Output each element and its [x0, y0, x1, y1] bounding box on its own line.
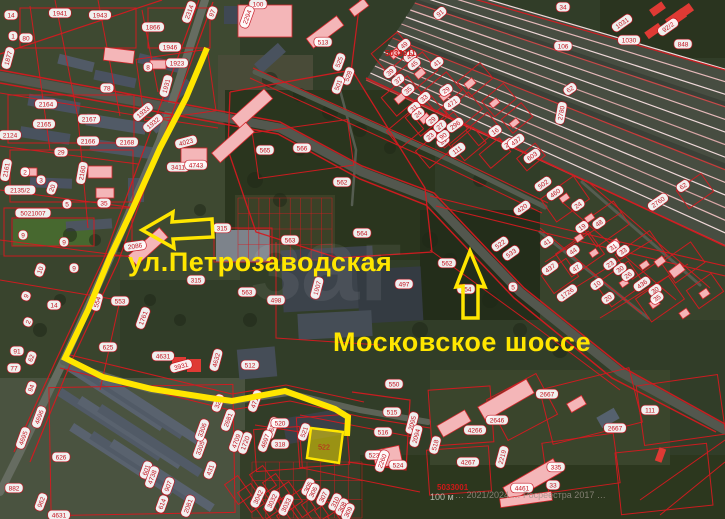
parcel-number-label: 14 [4, 10, 18, 20]
parcel-number-label: 111 [641, 405, 659, 415]
parcel-number-label: 520 [271, 418, 289, 428]
svg-text:626: 626 [56, 454, 67, 461]
svg-text:520: 520 [275, 420, 286, 427]
tree [513, 323, 527, 337]
satellite-map: 1419411943180187718661946192387819311933… [0, 0, 725, 519]
svg-text:563: 563 [285, 237, 296, 244]
parcel-number-label: 29 [54, 147, 68, 157]
svg-text:4266: 4266 [468, 427, 483, 434]
parcel-number-label: 2167 [78, 114, 101, 124]
building [96, 188, 114, 198]
svg-text:2135/2: 2135/2 [10, 187, 30, 194]
svg-text:524: 524 [393, 462, 404, 469]
terrain-patch [216, 230, 270, 262]
svg-text:566: 566 [297, 145, 308, 152]
svg-text:512: 512 [245, 362, 256, 369]
parcel-number-label: 566 [293, 143, 311, 153]
svg-text:2124: 2124 [3, 132, 18, 139]
parcel-number-label: 2168 [116, 137, 139, 147]
svg-text:1946: 1946 [163, 44, 178, 51]
svg-text:2166: 2166 [81, 138, 96, 145]
parcel-number-label: 2667 [604, 423, 627, 433]
cadastral-quarter-label: 5033011 [385, 49, 416, 58]
parcel-number-label: 5 [62, 199, 71, 209]
svg-text:35: 35 [100, 200, 108, 207]
svg-text:3: 3 [39, 177, 43, 184]
svg-text:9: 9 [62, 239, 66, 246]
svg-text:2667: 2667 [608, 425, 623, 432]
svg-text:335: 335 [551, 464, 562, 471]
parcel-number-label: 563 [238, 287, 256, 297]
tree [174, 314, 186, 326]
parcel-number-label: 33 [546, 480, 560, 490]
svg-text:2646: 2646 [490, 417, 505, 424]
parcel-number-label: 1761 [135, 306, 152, 331]
svg-text:2164: 2164 [39, 101, 54, 108]
parcel-number-label: 516 [374, 427, 392, 437]
parcel-number-label: 14 [47, 300, 61, 310]
parcel-number-label: 4461 [511, 483, 534, 493]
parcel-number-label: 77 [7, 363, 21, 373]
parcel-number-label: 498 [267, 295, 285, 305]
building [88, 166, 112, 178]
parcel-number-label: 625 [99, 342, 117, 352]
svg-text:14: 14 [50, 302, 58, 309]
svg-text:4631: 4631 [52, 512, 67, 519]
parcel-number-label: 8 [143, 62, 152, 72]
parcel-number-label: 550 [385, 379, 403, 389]
parcel-number-label: 4266 [464, 425, 487, 435]
tree [482, 292, 498, 308]
svg-text:2168: 2168 [120, 139, 135, 146]
svg-text:78: 78 [103, 85, 111, 92]
parcel-number-label: 2 [20, 167, 29, 177]
svg-text:2167: 2167 [82, 116, 97, 123]
svg-text:14: 14 [7, 12, 15, 19]
svg-text:497: 497 [399, 281, 410, 288]
parcel-number-label: 565 [256, 145, 274, 155]
parcel-number-label: 497 [395, 279, 413, 289]
svg-text:5021007: 5021007 [20, 210, 46, 217]
parcel-number-label: 315 [213, 223, 231, 233]
parcel-number-label: 106 [554, 41, 572, 51]
svg-text:1943: 1943 [93, 12, 108, 19]
parcel-number-label: 2646 [486, 415, 509, 425]
parcel-number-label: 315 [187, 275, 205, 285]
tree [243, 313, 257, 327]
svg-text:315: 315 [191, 277, 202, 284]
svg-text:4743: 4743 [189, 162, 204, 169]
svg-text:882: 882 [9, 485, 20, 492]
parcel-number-label: 1030 [618, 35, 641, 45]
svg-text:29: 29 [57, 149, 65, 156]
parcel-number-label: 35 [97, 198, 111, 208]
parcel-number-label: 2165 [33, 119, 56, 129]
tree [33, 323, 47, 337]
tree [247, 172, 263, 188]
svg-text:565: 565 [260, 147, 271, 154]
svg-text:562: 562 [442, 260, 453, 267]
svg-text:34: 34 [559, 4, 567, 11]
tree [194, 204, 206, 216]
svg-text:1: 1 [11, 33, 15, 40]
parcel-number-label: 335 [547, 462, 565, 472]
svg-text:1923: 1923 [170, 60, 185, 67]
parcel-number-label: 848 [674, 39, 692, 49]
parcel-number-label: 2124 [0, 130, 21, 140]
parcel-number-label: 78 [100, 83, 114, 93]
parcel-number-label: 9 [18, 230, 27, 240]
svg-text:111: 111 [645, 407, 655, 414]
cadastral-quarter-label: 5033001 [437, 483, 469, 492]
svg-text:848: 848 [678, 41, 689, 48]
parcel-number-label: 564 [353, 228, 371, 238]
svg-text:515: 515 [387, 409, 398, 416]
terrain-patch [297, 310, 372, 340]
parcel-number-label: 5 [508, 282, 517, 292]
parcel-number-label: 882 [5, 483, 23, 493]
highlighted-parcel-number: 522 [318, 444, 330, 451]
svg-text:498: 498 [271, 297, 282, 304]
svg-text:106: 106 [558, 43, 569, 50]
svg-text:1941: 1941 [53, 10, 68, 17]
tree [144, 294, 156, 306]
svg-text:9: 9 [72, 265, 76, 272]
parcel-number-label: 80 [19, 33, 33, 43]
svg-text:513: 513 [318, 39, 329, 46]
parcel-number-label: 2166 [77, 136, 100, 146]
tree [412, 322, 428, 338]
svg-text:3411: 3411 [171, 164, 185, 171]
svg-text:4267: 4267 [461, 459, 476, 466]
svg-text:563: 563 [242, 289, 253, 296]
parcel-number-label: 1946 [159, 42, 182, 52]
svg-text:625: 625 [103, 344, 114, 351]
parcel-number-label: 9 [69, 263, 78, 273]
parcel-number-label: 1866 [142, 22, 165, 32]
parcel-number-label: 2135/2 [4, 185, 35, 195]
svg-text:4461: 4461 [515, 485, 530, 492]
svg-text:1866: 1866 [146, 24, 161, 31]
svg-text:80: 80 [22, 35, 30, 42]
parcel-number-label: 1943 [89, 10, 112, 20]
parcel-number-label: 4631 [48, 510, 71, 519]
parcel-number-label: 5021007 [15, 208, 51, 218]
parcel-number-label: 4632 [208, 348, 223, 372]
svg-text:5: 5 [65, 201, 69, 208]
parcel-number-label: 512 [241, 360, 259, 370]
svg-text:91: 91 [13, 348, 21, 355]
svg-text:562: 562 [337, 179, 348, 186]
svg-text:4631: 4631 [156, 353, 171, 360]
svg-text:318: 318 [275, 441, 286, 448]
svg-text:553: 553 [115, 298, 126, 305]
tree [89, 234, 101, 246]
parcel-number-label: 562 [438, 258, 456, 268]
parcel-number-label: 525 [331, 52, 346, 72]
svg-text:100: 100 [253, 1, 264, 8]
building [349, 0, 369, 17]
svg-text:2: 2 [23, 169, 27, 176]
svg-text:550: 550 [389, 381, 400, 388]
parcel-number-label: 4743 [185, 160, 208, 170]
parcel-number-label: 524 [389, 460, 407, 470]
parcel-number-label: 4631 [152, 351, 175, 361]
svg-text:5: 5 [511, 284, 515, 291]
parcel-number-label: 4267 [457, 457, 480, 467]
parcel-number-label: 3 [36, 175, 45, 185]
svg-text:9: 9 [21, 232, 25, 239]
svg-text:315: 315 [217, 225, 228, 232]
parcel-number-label: 563 [281, 235, 299, 245]
svg-text:1030: 1030 [622, 37, 637, 44]
parcel-number-label: 626 [52, 452, 70, 462]
parcel-number-label: 562 [333, 177, 351, 187]
parcel-number-label: 553 [111, 296, 129, 306]
parcel-number-label: 9 [59, 237, 68, 247]
svg-text:516: 516 [378, 429, 389, 436]
svg-text:8: 8 [146, 64, 150, 71]
parcel-number-label: 515 [383, 407, 401, 417]
parcel-number-label: 1941 [49, 8, 72, 18]
svg-text:77: 77 [10, 365, 18, 372]
parcel-number-label: 2164 [35, 99, 58, 109]
svg-text:564: 564 [357, 230, 368, 237]
svg-text:2165: 2165 [37, 121, 52, 128]
parcel-number-label: 1923 [166, 58, 189, 68]
svg-text:2667: 2667 [540, 391, 555, 398]
parcel-number-label: 1 [8, 31, 17, 41]
parcel-number-label: 34 [556, 2, 570, 12]
parcel-number-label: 318 [271, 439, 289, 449]
parcel-number-label: 513 [314, 37, 332, 47]
svg-text:33: 33 [549, 482, 557, 489]
parcel-number-label: 91 [10, 346, 24, 356]
parcel-number-label: 2667 [536, 389, 559, 399]
map-viewport[interactable]: 1419411943180187718661946192387819311933… [0, 0, 725, 519]
